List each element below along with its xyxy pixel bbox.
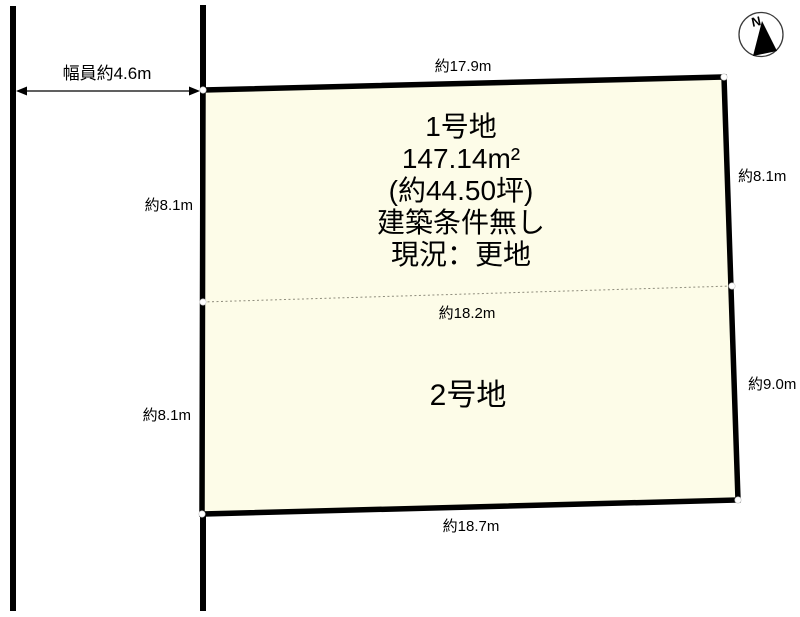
plot1-condition: 建築条件無し (377, 207, 545, 238)
plot1-name: 1号地 (425, 111, 497, 142)
plot1-area-tsubo: (約44.50坪) (389, 175, 534, 206)
arrowhead-left-icon (16, 87, 27, 96)
vertex-mid-right (729, 283, 735, 289)
plot1-status: 現況：更地 (391, 239, 531, 270)
compass: N (739, 13, 783, 57)
site-plan-svg: 幅員約4.6m 約17.9m 約8.1m 約9.0m 約8.1m 約8.1m 約… (0, 0, 800, 617)
site-plan-canvas: 幅員約4.6m 約17.9m 約8.1m 約9.0m 約8.1m 約8.1m 約… (0, 0, 800, 617)
dim-bottom-label: 約18.7m (443, 518, 500, 535)
dim-divider-label: 約18.2m (439, 305, 496, 322)
dim-left-upper-label: 約8.1m (145, 197, 193, 214)
arrowhead-right-icon (189, 87, 200, 96)
dim-right-lower-label: 約9.0m (748, 376, 796, 393)
dim-left-lower-label: 約8.1m (143, 407, 191, 424)
dim-right-upper-label: 約8.1m (738, 168, 786, 185)
plot1-area-m2: 147.14m² (402, 143, 520, 174)
road-width-label: 幅員約4.6m (63, 64, 152, 83)
dim-top-label: 約17.9m (435, 58, 492, 75)
vertex-top-left (200, 87, 206, 93)
vertex-bottom-right (735, 497, 741, 503)
vertex-bottom-left (199, 511, 205, 517)
vertex-top-right (721, 74, 727, 80)
plot2-name: 2号地 (430, 379, 507, 412)
vertex-mid-left (200, 299, 206, 305)
